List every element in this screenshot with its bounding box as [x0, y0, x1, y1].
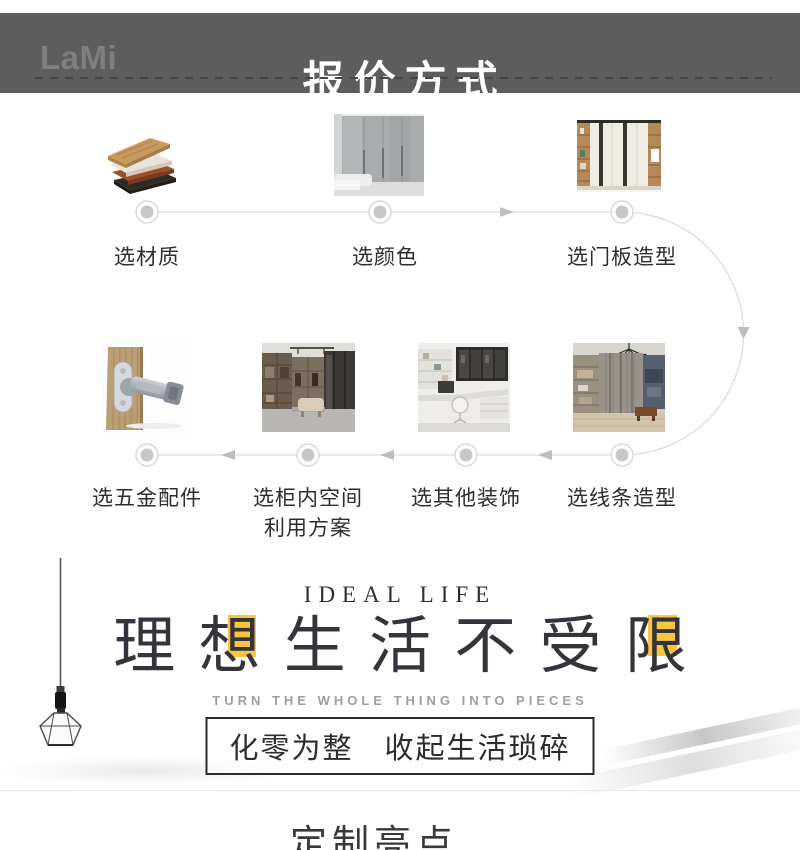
wardrobe-chandelier-image — [573, 343, 665, 432]
step-label-line1: 选柜内空间 — [253, 487, 363, 510]
hero-char: 受 — [539, 611, 601, 683]
step-label-interior-space: 选柜内空间 利用方案 — [223, 484, 393, 544]
arrow-left-icon — [538, 450, 552, 460]
hero-subtitle: TURN THE WHOLE THING INTO PIECES — [0, 693, 800, 708]
step-dot — [136, 444, 158, 466]
hero-char: 理 — [113, 611, 175, 683]
material-samples-image — [100, 136, 182, 200]
arrow-left-icon — [221, 450, 235, 460]
hero-char: 生 — [284, 611, 346, 683]
arrow-right-icon — [500, 207, 514, 217]
step-label-decoration: 选其他装饰 — [381, 484, 551, 514]
door-panel-wardrobe-image — [577, 120, 661, 192]
hero-char-highlighted: 想 — [198, 611, 260, 683]
arrow-left-icon — [380, 450, 394, 460]
section-divider — [0, 790, 800, 791]
gray-wardrobe-image — [334, 114, 424, 196]
section-title: 定制亮点 — [0, 822, 774, 850]
step-label-line2: 利用方案 — [264, 517, 352, 540]
arrow-down-icon — [738, 327, 750, 339]
page: LaMi 报价方式 — [0, 0, 800, 850]
hero-title: 理 想 生 活 不 受 限 — [0, 611, 800, 683]
step-label-hardware: 选五金配件 — [62, 484, 232, 514]
step-label-material: 选材质 — [62, 243, 232, 273]
hero-char: 不 — [454, 611, 516, 683]
hero-char: 活 — [369, 611, 431, 683]
step-dot — [455, 444, 477, 466]
hero-eyebrow: IDEAL LIFE — [0, 582, 800, 608]
step-dot — [611, 201, 633, 223]
step-dot — [136, 201, 158, 223]
step-dot — [369, 201, 391, 223]
slogan-box: 化零为整 收起生活琐碎 — [205, 717, 594, 775]
study-corner-image — [418, 343, 510, 432]
hinge-hardware-image — [100, 342, 192, 434]
step-dot — [297, 444, 319, 466]
step-label-trim-style: 选线条造型 — [537, 484, 707, 514]
hero-char-highlighted: 限 — [625, 611, 687, 683]
step-label-door-panel: 选门板造型 — [537, 243, 707, 273]
step-label-color: 选颜色 — [300, 243, 470, 273]
walk-in-closet-image — [262, 343, 355, 432]
flow-connectors — [0, 0, 800, 560]
step-dot — [611, 444, 633, 466]
